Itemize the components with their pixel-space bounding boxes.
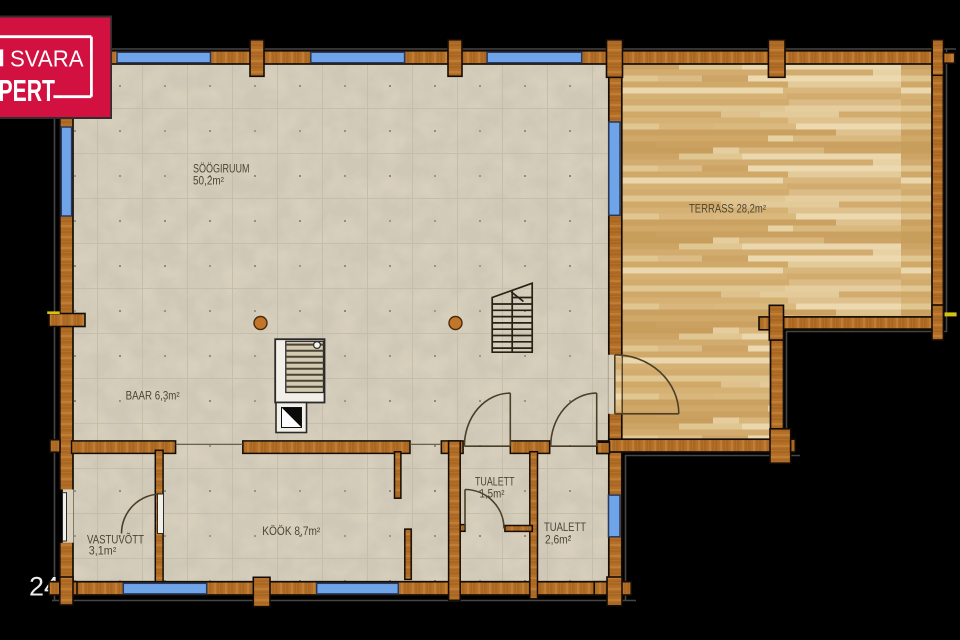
svg-text:PERT: PERT xyxy=(0,73,55,108)
svg-text:50,2m²: 50,2m² xyxy=(193,176,224,188)
svg-text:1,5m²: 1,5m² xyxy=(480,489,505,501)
svg-text:2,6m²: 2,6m² xyxy=(545,534,571,546)
svg-text:TUALETT: TUALETT xyxy=(475,477,515,489)
svg-text:TERRASS 28,2m²: TERRASS 28,2m² xyxy=(689,203,766,215)
svg-text:3,1m²: 3,1m² xyxy=(89,546,117,558)
svg-text:SVARA: SVARA xyxy=(10,45,84,71)
svg-text:TUALETT: TUALETT xyxy=(544,522,586,534)
svg-text:BAAR 6,3m²: BAAR 6,3m² xyxy=(126,391,180,403)
svg-text:KÖÖK 8,7m²: KÖÖK 8,7m² xyxy=(262,526,320,538)
svg-text:SÖÖGIRUUM: SÖÖGIRUUM xyxy=(193,164,250,176)
